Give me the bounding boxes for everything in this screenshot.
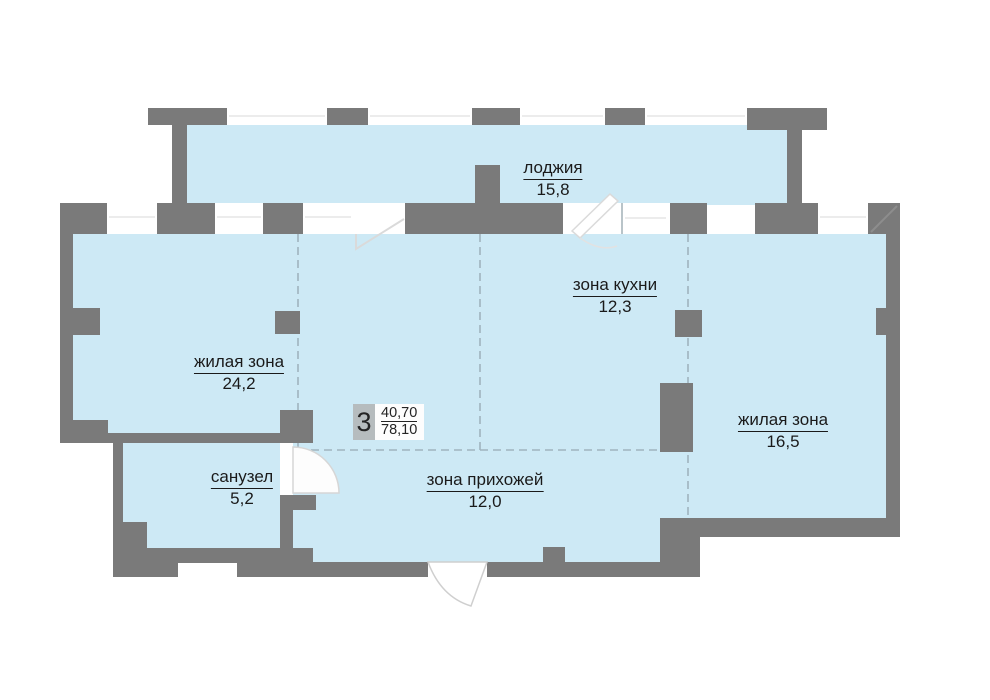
room-name: жилая зона xyxy=(194,352,284,374)
room-name: зона кухни xyxy=(573,275,657,297)
room-area: 12,0 xyxy=(427,492,544,512)
wall-loggia-top xyxy=(472,108,520,125)
wall-partition xyxy=(660,383,693,452)
window xyxy=(107,203,157,234)
wall-pilaster-right xyxy=(876,308,886,335)
window xyxy=(215,203,263,234)
loggia-door-opening xyxy=(352,203,405,234)
wall-niche xyxy=(178,563,237,577)
room-name: зона прихожей xyxy=(427,470,544,492)
entrance-door-swing xyxy=(428,562,487,606)
room-label-loggia: лоджия 15,8 xyxy=(523,158,582,200)
wall-loggia-top xyxy=(327,108,368,125)
wall-loggia-right xyxy=(787,128,802,205)
pillar xyxy=(675,310,702,337)
room-name: жилая зона xyxy=(738,410,828,432)
wall-bathroom-block xyxy=(123,522,147,548)
wall-bathroom-top xyxy=(60,433,313,443)
room-label-living-zone-2: жилая зона 16,5 xyxy=(738,410,828,452)
room-area: 12,3 xyxy=(573,297,657,317)
floor-plan: лоджия 15,8 зона кухни 12,3 жилая зона 2… xyxy=(0,0,990,700)
wall-outer-bottom-right xyxy=(687,518,892,537)
wall-loggia-left xyxy=(172,121,187,205)
room-area: 15,8 xyxy=(523,180,582,200)
wall-outer-right xyxy=(886,203,900,537)
area-values: 40,70 78,10 xyxy=(375,404,424,440)
floor-plan-drawing xyxy=(0,0,990,700)
wall-bathroom-right xyxy=(280,495,293,548)
wall-outer-bottom xyxy=(487,562,673,577)
wall-loggia-top xyxy=(605,108,645,125)
wall-facade xyxy=(405,203,563,234)
wall-loggia-top-right xyxy=(747,108,827,130)
wall-loggia-top xyxy=(148,108,227,125)
wall-pilaster-left xyxy=(73,308,100,335)
window xyxy=(303,203,353,234)
room-area: 24,2 xyxy=(194,374,284,394)
wall-stub xyxy=(543,547,565,562)
room-label-kitchen-zone: зона кухни 12,3 xyxy=(573,275,657,317)
wall-loggia-stub xyxy=(475,165,500,205)
window xyxy=(818,203,868,234)
rooms-count: 3 xyxy=(353,404,375,440)
total-area: 78,10 xyxy=(381,422,417,438)
wall-outer-bottom xyxy=(280,562,428,577)
wall-facade xyxy=(670,203,707,234)
room-name: санузел xyxy=(211,467,273,489)
room-label-bathroom: санузел 5,2 xyxy=(211,467,273,509)
living-area: 40,70 xyxy=(381,405,417,422)
room-name: лоджия xyxy=(523,158,582,180)
pillar xyxy=(275,311,300,334)
wall-facade xyxy=(157,203,215,234)
wall-facade xyxy=(755,203,818,234)
wall-block xyxy=(280,410,313,443)
wall-bathroom-left xyxy=(113,440,123,548)
wall-outer-left xyxy=(60,203,73,443)
apartment-stats: 3 40,70 78,10 xyxy=(353,404,424,440)
wall-facade xyxy=(263,203,303,234)
room-label-living-zone-1: жилая зона 24,2 xyxy=(194,352,284,394)
room-label-hallway-zone: зона прихожей 12,0 xyxy=(427,470,544,512)
room-area: 5,2 xyxy=(211,489,273,509)
room-area: 16,5 xyxy=(738,432,828,452)
